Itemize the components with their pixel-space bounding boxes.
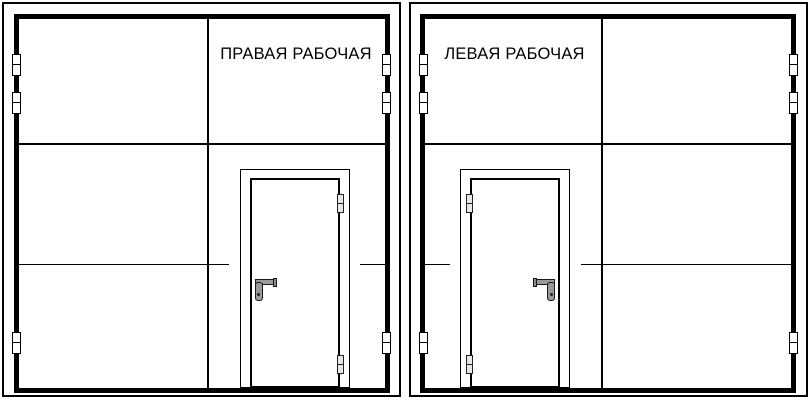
gate-right-working: ПРАВАЯ РАБОЧАЯ — [2, 2, 401, 397]
gate-hinge-icon — [419, 332, 428, 354]
handle-escutcheon — [255, 282, 263, 301]
gate-hinge-icon — [12, 332, 21, 354]
gate-frame — [14, 14, 390, 393]
gate-hinge-icon — [382, 332, 391, 354]
gate-orientation-diagram: ПРАВАЯ РАБОЧАЯ ЛЕВ — [0, 0, 810, 400]
gate-left-working: ЛЕВАЯ РАБОЧАЯ — [409, 2, 808, 397]
gate-hinge-icon — [419, 92, 428, 114]
handle-lever-end — [273, 278, 277, 287]
door-hinge-icon — [337, 355, 344, 374]
door-hinge-icon — [467, 355, 474, 374]
door-handle-icon — [531, 278, 555, 302]
door-hinge-icon — [337, 194, 344, 213]
gate-hinge-icon — [789, 332, 798, 354]
gate-label: ЛЕВАЯ РАБОЧАЯ — [426, 45, 603, 64]
door-handle-icon — [255, 278, 279, 302]
handle-escutcheon — [548, 282, 556, 301]
handle-keyhole — [550, 293, 553, 296]
gate-hinge-icon — [789, 92, 798, 114]
gate-hinge-icon — [789, 54, 798, 76]
gate-hinge-icon — [382, 92, 391, 114]
gate-hinge-icon — [12, 54, 21, 76]
gate-label: ПРАВАЯ РАБОЧАЯ — [207, 45, 385, 64]
handle-lever-end — [534, 278, 538, 287]
gate-frame — [420, 14, 796, 393]
door-hinge-icon — [467, 194, 474, 213]
gate-hinge-icon — [12, 92, 21, 114]
